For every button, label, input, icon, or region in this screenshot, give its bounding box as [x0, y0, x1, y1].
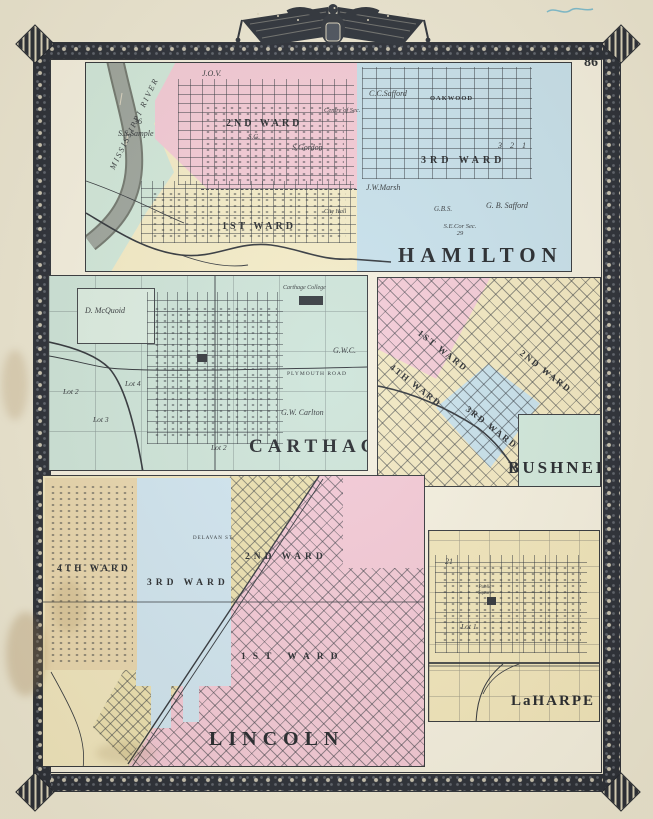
label-owner: S.Gordon — [292, 143, 323, 152]
label-lot2-south: Lot 2 — [211, 444, 227, 453]
map-panel-laharpe: 21 Lot 1 Public Square LaHARPE — [428, 530, 600, 722]
map-panel-bushnell: 1ST WARD 2ND WARD 3RD WARD 4TH WARD BUSH… — [377, 277, 601, 487]
eagle-flags-ornament — [228, 0, 438, 62]
label-lot4: Lot 4 — [125, 380, 141, 389]
label-public-square: Public Square — [471, 585, 499, 597]
label-owner: C.C.Safford — [369, 89, 407, 98]
label-owner: S.S.Sample — [118, 129, 154, 138]
label-ward1: 1ST WARD — [222, 221, 296, 233]
label-owner: G.B.S. — [434, 205, 452, 213]
label-ward1: 1ST WARD — [241, 652, 344, 663]
border-right-band — [603, 43, 620, 791]
paper-stain — [96, 742, 156, 764]
label-lot2-west: Lot 2 — [63, 388, 79, 397]
map-panel-carthage: D. McQuoid Carthage College G.W.C. PLYMO… — [48, 275, 368, 471]
label-plymouth-road: PLYMOUTH ROAD — [287, 371, 347, 377]
railroad-lines — [86, 63, 572, 272]
map-panel-lincoln: 4TH WARD 3RD WARD 2ND WARD 1ST WARD DELA… — [42, 475, 425, 767]
label-owner: J.O.V. — [202, 69, 221, 78]
label-ward3: 3RD WARD — [421, 155, 505, 167]
label-college: Carthage College — [283, 285, 326, 292]
map-panel-hamilton: MISSISSIPPI RIVER 36 S.S.Sample J.O.V. 2… — [85, 62, 572, 272]
label-se-corner: S.E.Cor Sec. 29 — [442, 223, 478, 238]
label-owner: D. McQuoid — [85, 306, 125, 315]
label-owner: G. B. Safford — [486, 201, 528, 210]
label-owner: G.W.C. — [333, 346, 356, 355]
map-title-hamilton: HAMILTON — [398, 243, 563, 267]
label-centre-of-sec: Centre of Sec. — [324, 107, 360, 114]
label-section-21: 21 — [445, 557, 453, 566]
paper-stain — [52, 580, 86, 632]
label-owner: S.G. — [248, 133, 260, 141]
label-delavan-st: DELAVAN ST. — [193, 536, 235, 542]
label-owner: G.W. Carlton — [281, 408, 324, 417]
label-lot3: Lot 3 — [93, 416, 109, 425]
map-title-bushnell: BUSHNELL — [508, 458, 601, 478]
label-ward4: 4TH WARD — [57, 564, 131, 575]
railroad-lines — [43, 476, 425, 767]
blue-ink-mark — [545, 3, 605, 19]
map-title-lincoln: LINCOLN — [209, 728, 344, 751]
label-owner: J.W.Marsh — [366, 183, 400, 192]
border-bottom-band — [34, 774, 620, 791]
label-section-36: 36 — [134, 117, 142, 126]
label-lot1: Lot 1 — [461, 623, 477, 632]
label-lot-numbers: 3 2 1 — [498, 141, 526, 150]
label-ward3: 3RD WARD — [147, 578, 229, 589]
label-ward2: 2ND WARD — [226, 118, 302, 130]
paper-stain — [2, 350, 28, 420]
label-oakwood: OAKWOOD — [430, 95, 473, 102]
label-ward2: 2ND WARD — [245, 552, 327, 563]
label-city-hall: City Hall — [324, 209, 346, 216]
page-number: 86 — [584, 55, 598, 71]
atlas-page: 86 MISSISSIPPI RIVER 36 S.S.Sample J.O.V… — [0, 0, 653, 819]
paper-stain — [6, 612, 46, 696]
map-title-carthage: CARTHAGE — [249, 436, 368, 458]
map-title-laharpe: LaHARPE — [511, 693, 595, 710]
